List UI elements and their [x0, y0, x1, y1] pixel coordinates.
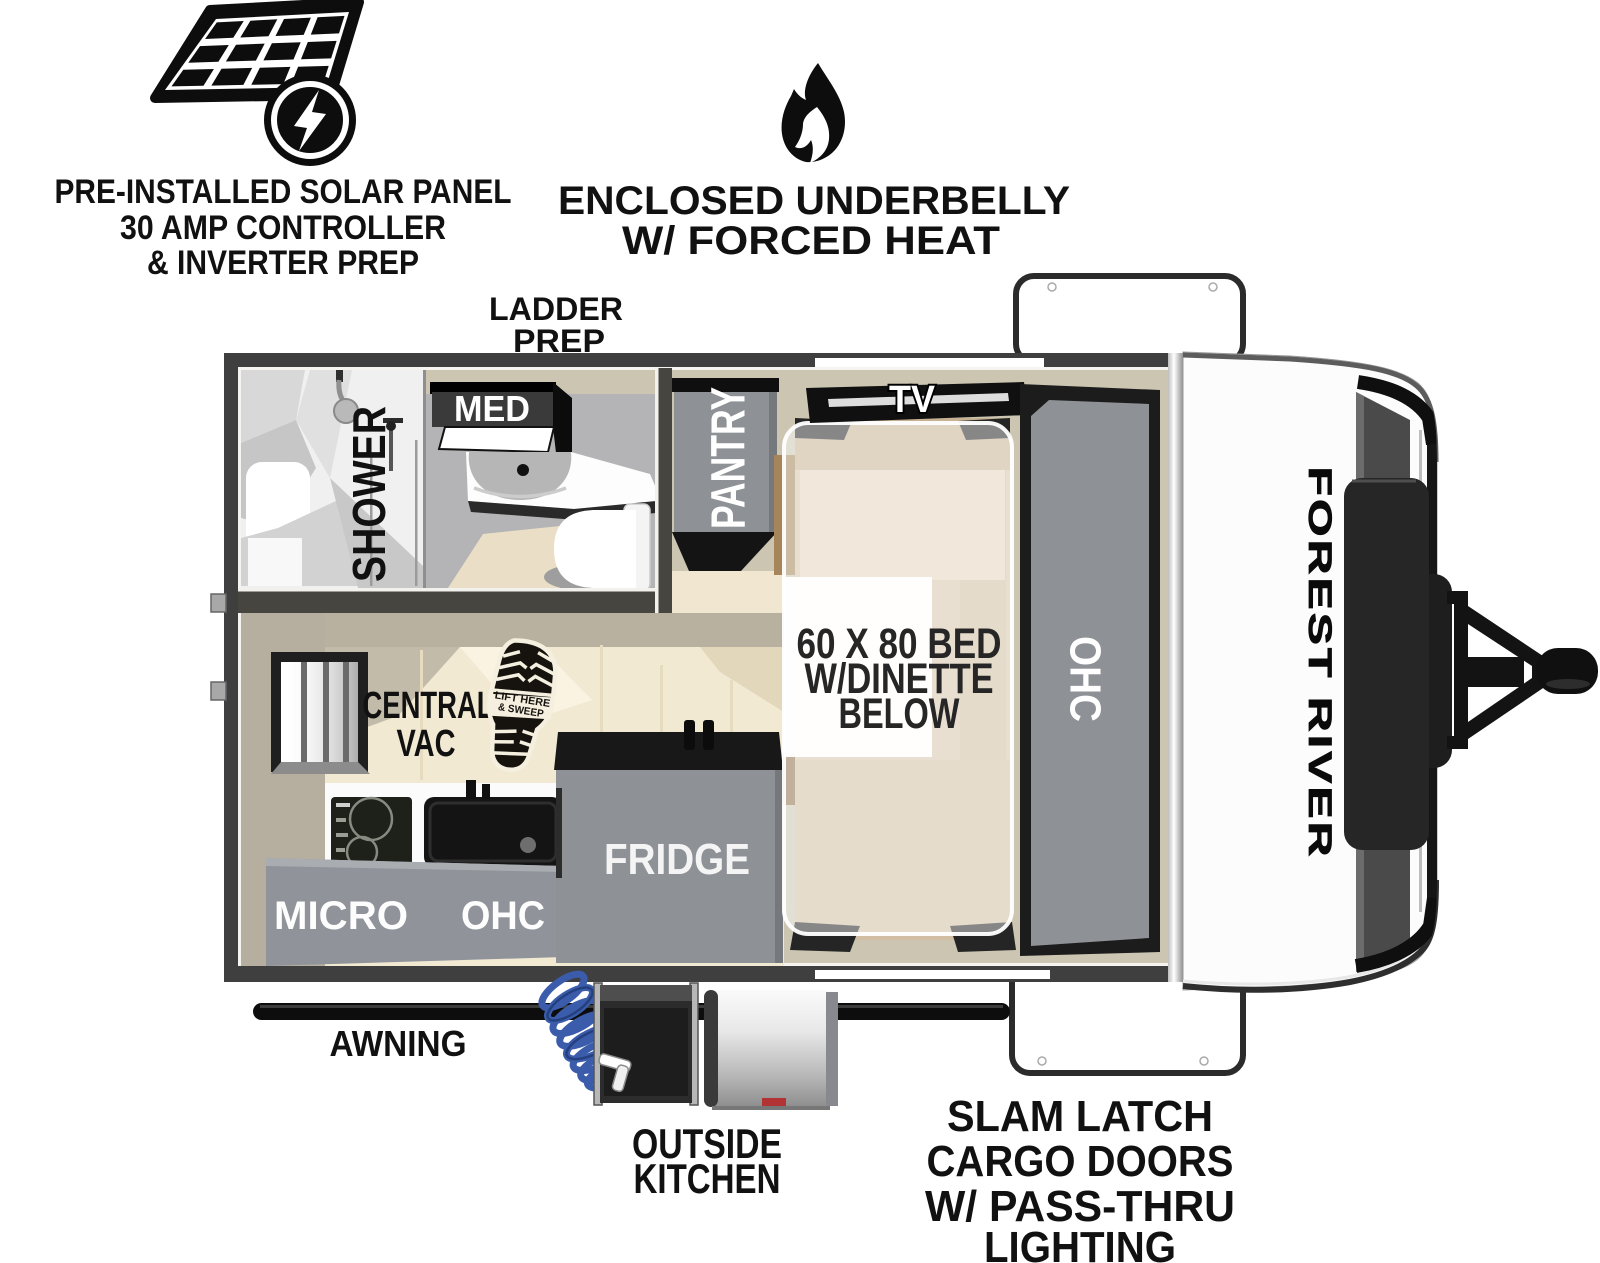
- svg-text:ENCLOSED UNDERBELLY: ENCLOSED UNDERBELLY: [558, 179, 1070, 223]
- svg-text:KITCHEN: KITCHEN: [634, 1155, 781, 1202]
- svg-text:FOREST RIVER: FOREST RIVER: [1302, 467, 1338, 860]
- svg-text:TV: TV: [889, 379, 936, 421]
- svg-text:BELOW: BELOW: [839, 690, 960, 738]
- svg-text:AWNING: AWNING: [330, 1023, 467, 1064]
- svg-text:MICRO: MICRO: [274, 894, 408, 938]
- svg-text:CENTRAL: CENTRAL: [363, 685, 494, 727]
- svg-text:OHC: OHC: [461, 894, 545, 938]
- svg-text:LIGHTING: LIGHTING: [984, 1223, 1176, 1263]
- svg-text:SLAM LATCH: SLAM LATCH: [947, 1092, 1213, 1141]
- svg-text:PRE-INSTALLED SOLAR PANEL: PRE-INSTALLED SOLAR PANEL: [55, 173, 512, 211]
- svg-text:PANTRY: PANTRY: [703, 387, 756, 529]
- svg-text:SHOWER: SHOWER: [343, 406, 395, 582]
- svg-text:FRIDGE: FRIDGE: [604, 835, 750, 884]
- svg-text:CARGO DOORS: CARGO DOORS: [927, 1137, 1234, 1186]
- svg-text:30 AMP CONTROLLER: 30 AMP CONTROLLER: [120, 209, 446, 247]
- svg-text:LADDER: LADDER: [489, 291, 623, 327]
- svg-text:W/ FORCED HEAT: W/ FORCED HEAT: [622, 219, 1000, 263]
- svg-text:OHC: OHC: [1061, 636, 1110, 722]
- svg-text:VAC: VAC: [397, 723, 456, 765]
- svg-text:& INVERTER PREP: & INVERTER PREP: [147, 244, 419, 282]
- svg-text:MED: MED: [454, 388, 530, 429]
